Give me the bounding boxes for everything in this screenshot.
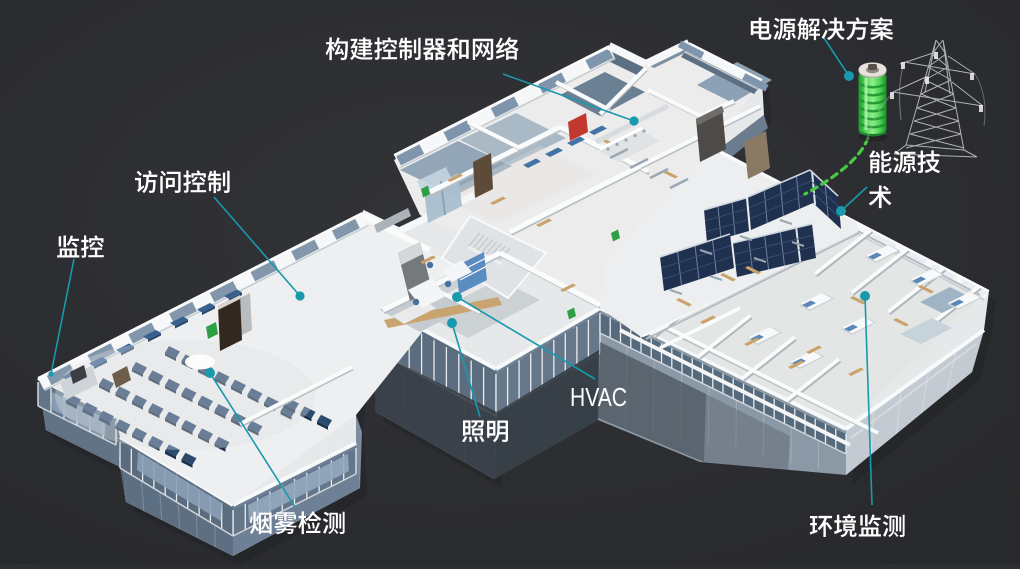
svg-text:HVAC: HVAC (570, 382, 627, 412)
